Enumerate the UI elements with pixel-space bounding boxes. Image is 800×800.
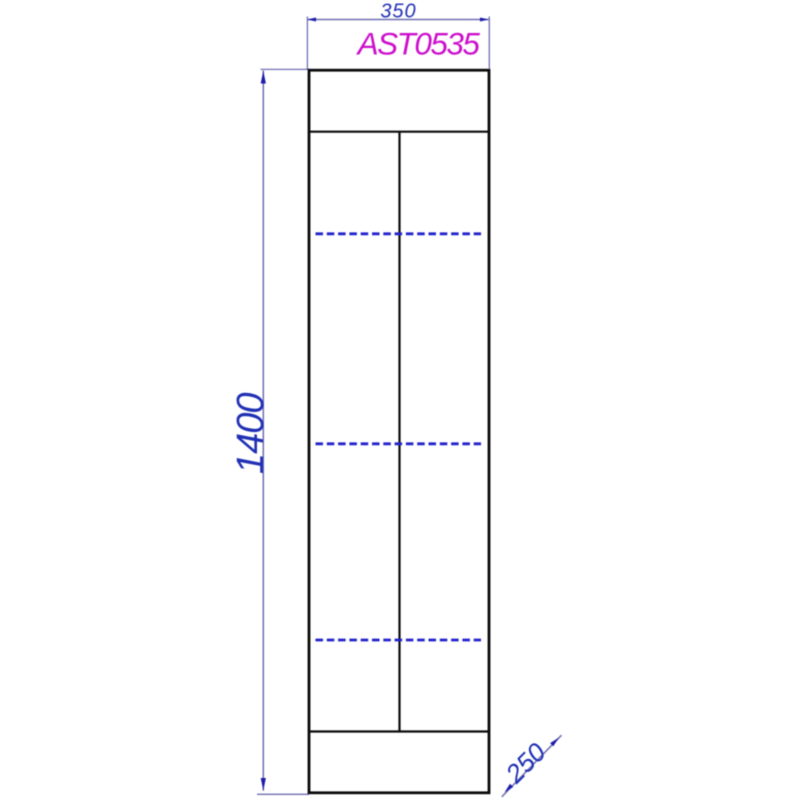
svg-text:AST0535: AST0535 [356,26,481,62]
svg-text:250: 250 [499,737,552,790]
svg-text:1400: 1400 [230,393,272,474]
svg-text:350: 350 [380,1,416,23]
